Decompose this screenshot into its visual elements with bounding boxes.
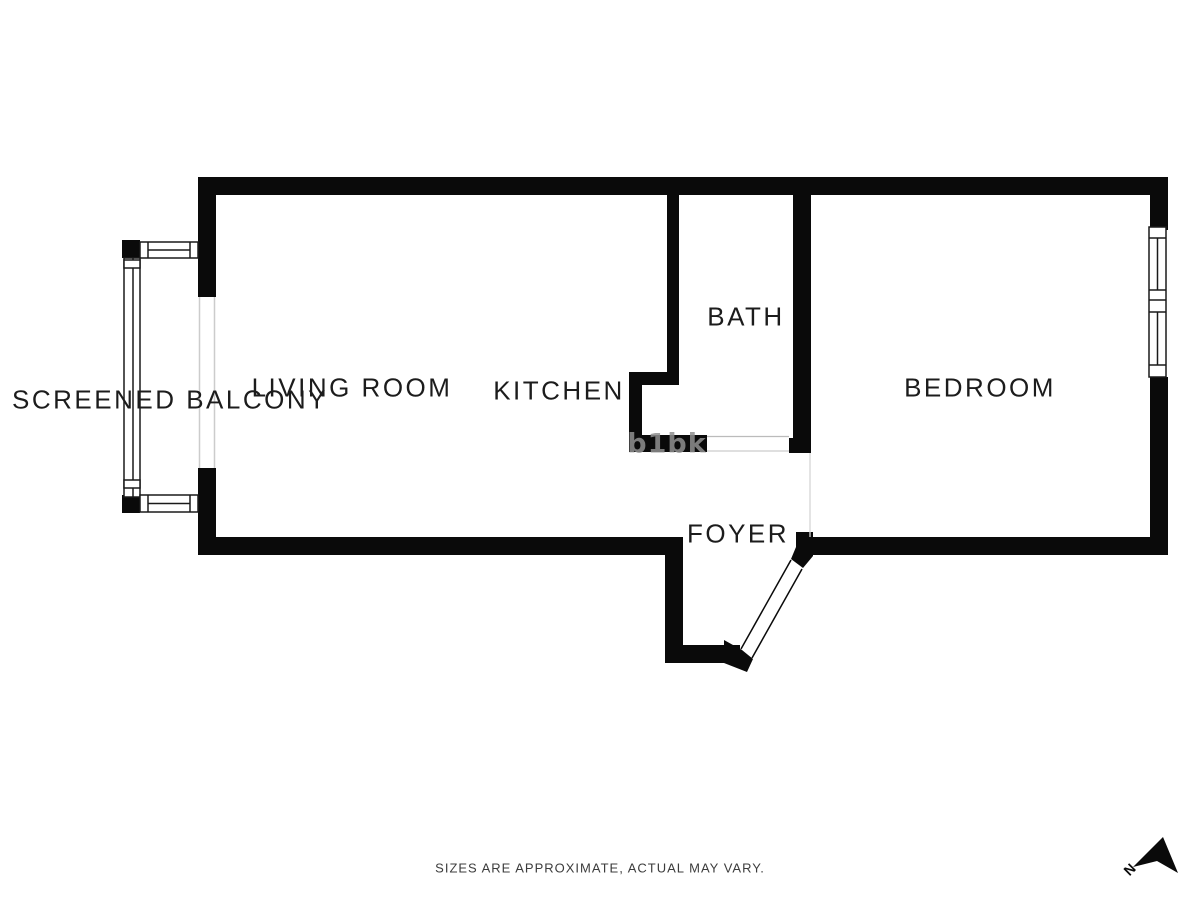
entry-door-jamb-top [791,532,813,568]
floorplan-drawing: N [0,0,1200,900]
balcony-window-top [140,242,198,258]
wall-right-lower [1150,377,1168,555]
balcony-window-bottom [140,495,198,512]
wall-bath-bedroom [793,195,811,453]
disclaimer-text: SIZES ARE APPROXIMATE, ACTUAL MAY VARY. [435,861,765,876]
compass: N [1120,837,1178,879]
wall-bath-left-upper [667,195,679,385]
entry-door-leaf-line-2 [752,569,802,658]
room-label-kitchen: KITCHEN [493,376,625,407]
room-label-living-room: LIVING ROOM [252,373,453,404]
wall-bottom-right [812,537,1168,555]
wall-bath-door-jamb [789,438,794,453]
entry-door-leaf-line-1 [741,560,791,649]
entry-door-jamb-bottom [724,640,753,672]
compass-north-label: N [1120,860,1138,878]
wall-top [198,177,1168,195]
bedroom-window [1149,227,1166,377]
room-label-foyer: FOYER [687,519,789,550]
wall-left-upper [198,177,216,297]
floorplan-page: N SCREENED BALCONY LIVING ROOM KITCHEN B… [0,0,1200,900]
room-label-bedroom: BEDROOM [904,373,1056,404]
wall-foyer-left [665,537,683,663]
watermark-text: b1bk [627,429,706,460]
balcony-post-top [122,240,140,258]
balcony-screen-left [124,258,140,497]
wall-bottom-left [198,537,683,555]
room-label-bath: BATH [707,302,784,333]
wall-right-upper [1150,177,1168,230]
compass-arrow-icon [1133,837,1178,873]
